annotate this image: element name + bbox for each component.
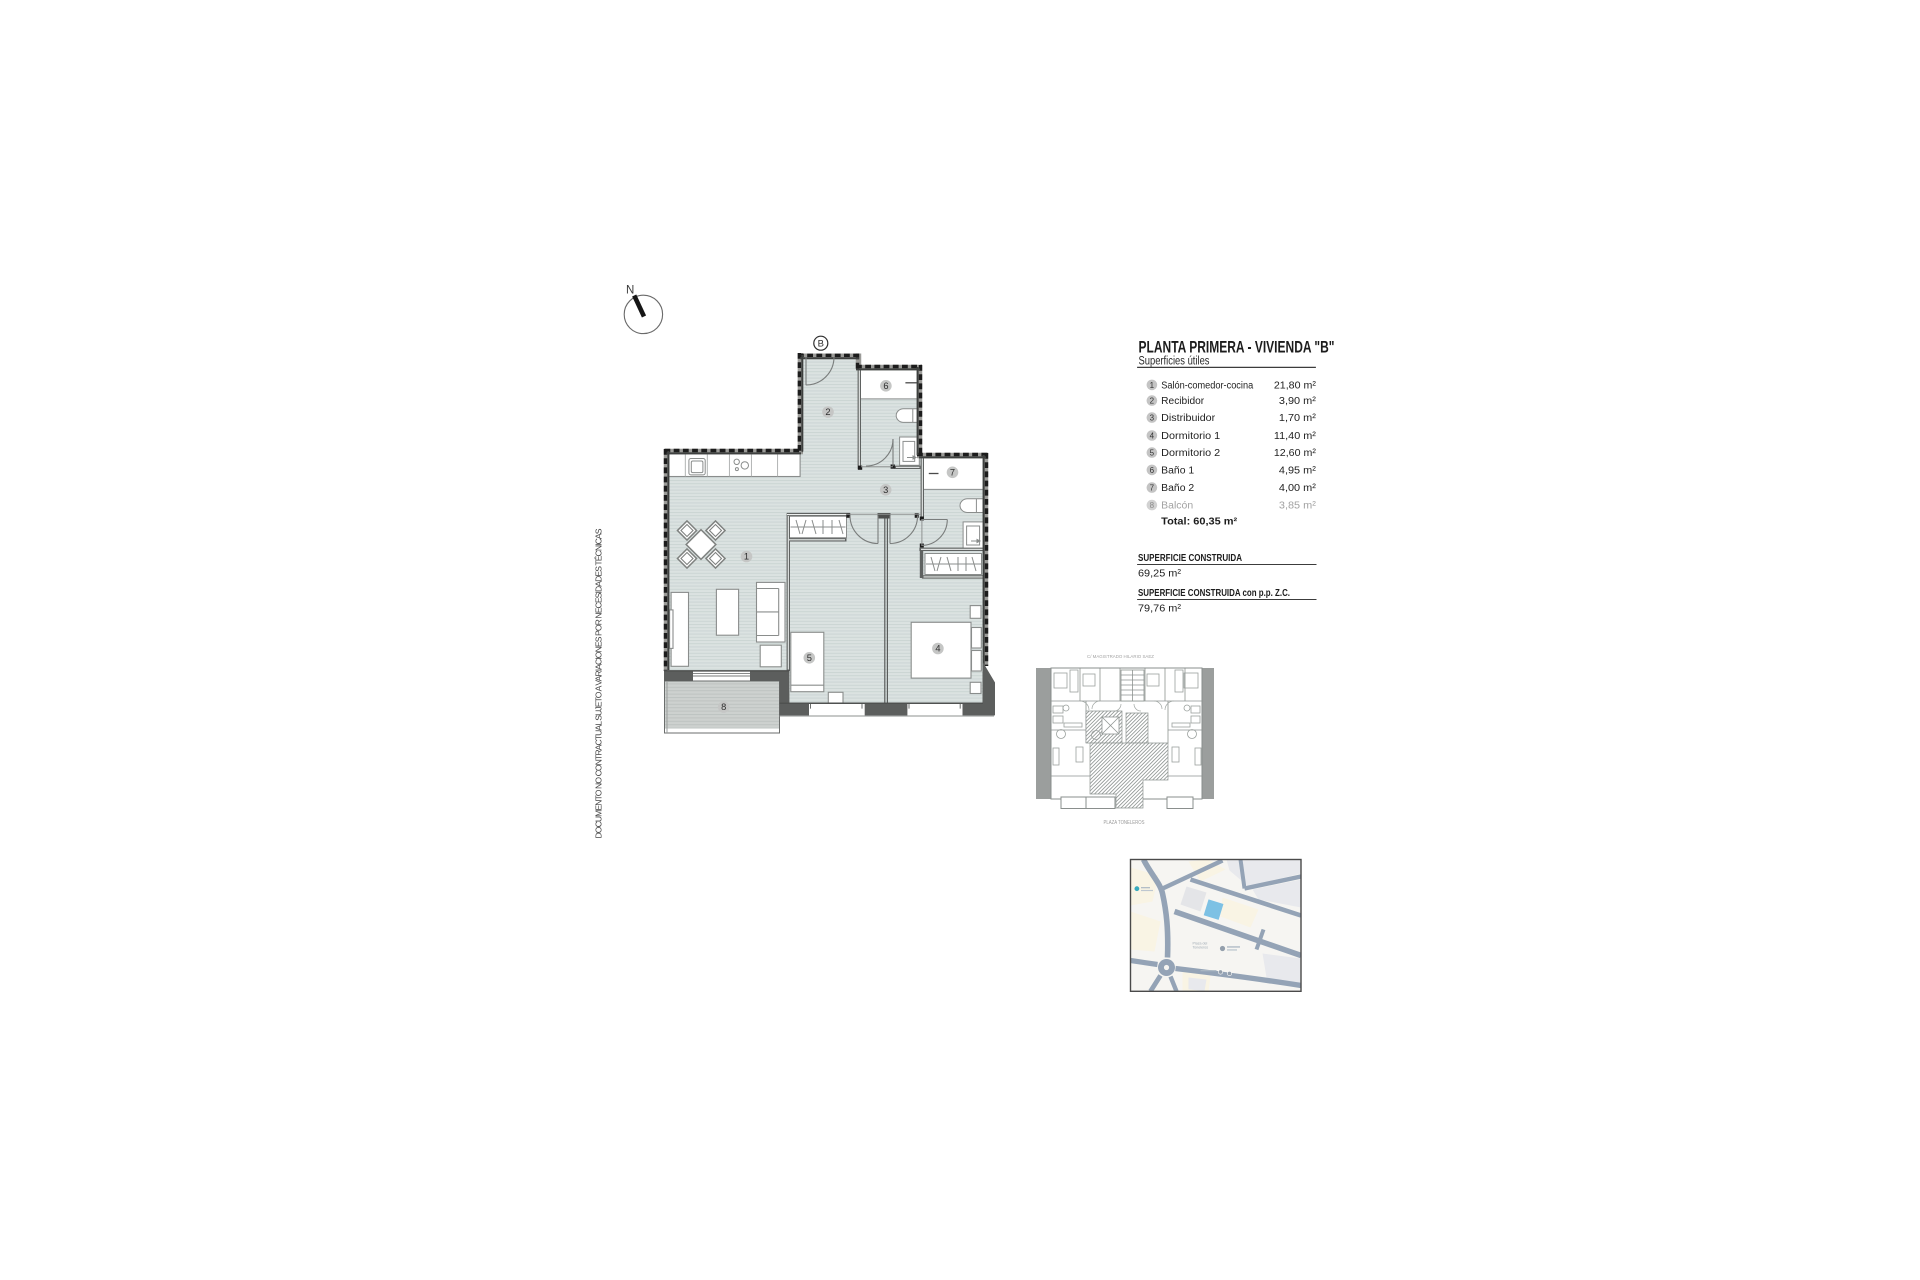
svg-text:SUPERFICIE CONSTRUIDA con p.p.: SUPERFICIE CONSTRUIDA con p.p. Z.C. [1138,587,1290,599]
svg-text:Recibidor: Recibidor [1161,396,1205,407]
svg-text:4: 4 [1150,432,1155,441]
svg-text:1: 1 [744,552,749,562]
svg-text:Baño 2: Baño 2 [1161,483,1194,494]
svg-text:12,60 m²: 12,60 m² [1274,448,1317,459]
svg-text:B: B [818,339,824,350]
svg-text:7: 7 [1150,484,1155,493]
svg-text:Distribuidor: Distribuidor [1161,413,1216,424]
svg-text:3,90 m²: 3,90 m² [1279,396,1317,407]
svg-text:N: N [626,285,634,297]
svg-text:69,25 m²: 69,25 m² [1138,568,1182,580]
svg-text:Salón-comedor-cocina: Salón-comedor-cocina [1161,380,1253,391]
svg-text:SUPERFICIE CONSTRUIDA: SUPERFICIE CONSTRUIDA [1138,552,1242,564]
svg-text:3,85 m²: 3,85 m² [1279,501,1317,512]
svg-text:3: 3 [1150,414,1155,423]
svg-text:C/ MAGISTRADO HILARIO SAEZ: C/ MAGISTRADO HILARIO SAEZ [1087,654,1154,659]
svg-text:21,80 m²: 21,80 m² [1274,380,1317,391]
svg-text:PLANTA PRIMERA - VIVIENDA "B": PLANTA PRIMERA - VIVIENDA "B" [1139,338,1335,357]
svg-text:PLAZA TONELEROS: PLAZA TONELEROS [1104,820,1145,826]
svg-text:4: 4 [935,644,940,654]
svg-text:1,70 m²: 1,70 m² [1279,413,1317,424]
svg-text:7: 7 [950,467,955,477]
svg-text:3: 3 [883,485,888,495]
svg-text:1: 1 [1150,381,1155,390]
svg-text:79,76 m²: 79,76 m² [1138,603,1182,615]
svg-text:Superficies útiles: Superficies útiles [1139,356,1210,368]
svg-text:2: 2 [1150,397,1155,406]
svg-text:Dormitorio 2: Dormitorio 2 [1161,448,1220,459]
svg-text:4,95 m²: 4,95 m² [1279,465,1317,476]
svg-text:6: 6 [883,381,888,391]
svg-text:Baño 1: Baño 1 [1161,465,1194,476]
svg-text:Balcón: Balcón [1161,501,1193,512]
svg-text:8: 8 [721,702,726,712]
svg-text:11,40 m²: 11,40 m² [1274,431,1317,442]
svg-text:5: 5 [1150,449,1155,458]
svg-text:Dormitorio 1: Dormitorio 1 [1161,431,1220,442]
svg-text:DOCUMENTO NO CONTRACTUAL SUJET: DOCUMENTO NO CONTRACTUAL SUJETO A VARIAC… [594,528,604,838]
svg-text:2: 2 [825,407,830,417]
svg-text:Total: 60,35 m²: Total: 60,35 m² [1161,516,1238,528]
svg-text:8: 8 [1150,501,1155,510]
svg-text:4,00 m²: 4,00 m² [1279,483,1317,494]
svg-text:5: 5 [807,653,812,663]
svg-text:6: 6 [1150,466,1155,475]
